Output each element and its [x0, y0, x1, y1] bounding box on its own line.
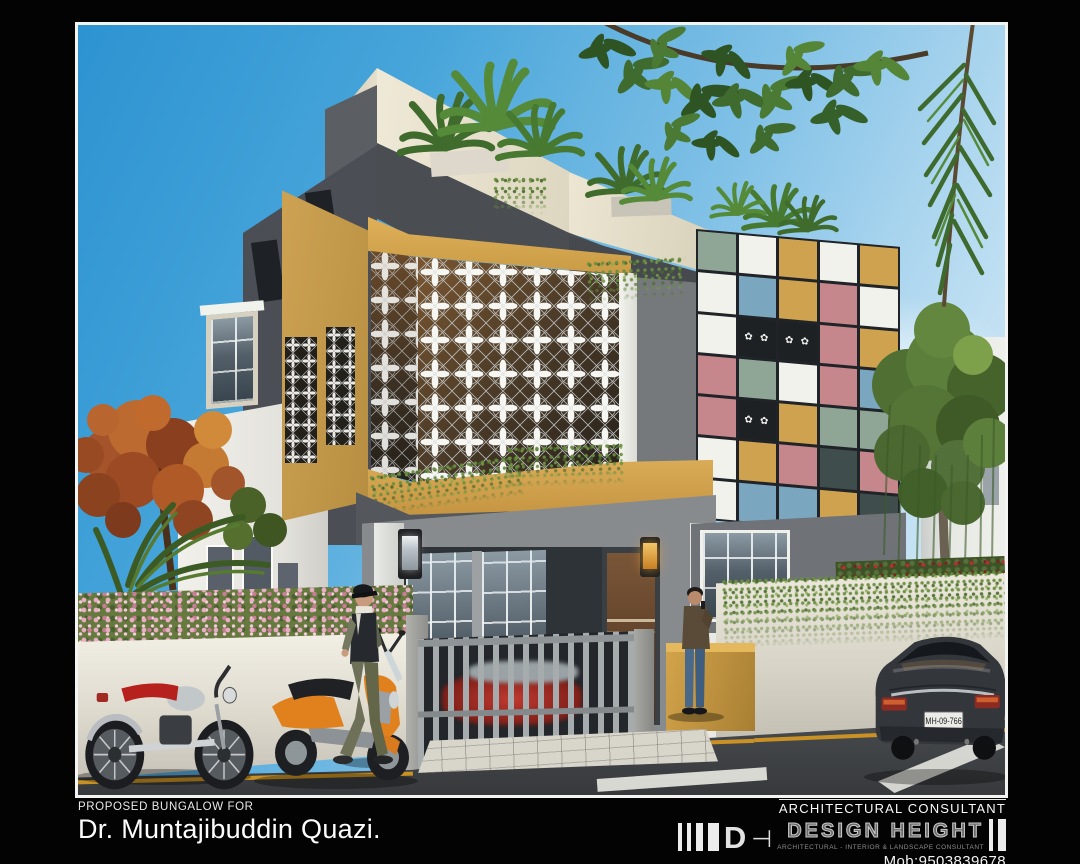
- firm-subtitle: ARCHITECTURAL - INTERIOR & LANDSCAPE CON…: [777, 844, 984, 851]
- consultant-block: ARCHITECTURAL CONSULTANT D ⊣ DESIGN HEIG…: [678, 799, 1006, 864]
- foreground-figures: MH-09-766: [78, 25, 1005, 795]
- logo-bar-icon: [989, 819, 993, 851]
- title-block: PROPOSED BUNGALOW FOR Dr. Muntajibuddin …: [78, 801, 381, 845]
- parked-sedan: MH-09-766: [876, 637, 1005, 760]
- firm-name: DESIGN HEIGHT: [787, 820, 984, 842]
- firm-logo: D ⊣ DESIGN HEIGHT ARCHITECTURAL - INTERI…: [678, 819, 1006, 851]
- architectural-rendering: MH-09-766: [78, 25, 1005, 795]
- client-name: Dr. Muntajibuddin Quazi.: [78, 814, 381, 845]
- firm-monogram: D: [724, 825, 746, 851]
- logo-bar-icon: [708, 823, 719, 851]
- monogram-tail-icon: ⊣: [751, 829, 772, 851]
- logo-bar-icon: [998, 819, 1006, 851]
- presentation-board: MH-09-766 PROPOSED BUNGALOW FOR Dr. Munt…: [0, 0, 1080, 864]
- project-label: PROPOSED BUNGALOW FOR: [78, 801, 381, 813]
- standing-man: [682, 587, 713, 715]
- license-plate: MH-09-766: [925, 716, 962, 726]
- render-border: MH-09-766: [75, 22, 1008, 798]
- logo-bar-icon: [687, 823, 691, 851]
- logo-bar-icon: [678, 823, 682, 851]
- consultant-label: ARCHITECTURAL CONSULTANT: [779, 799, 1006, 816]
- logo-bar-icon: [696, 823, 703, 851]
